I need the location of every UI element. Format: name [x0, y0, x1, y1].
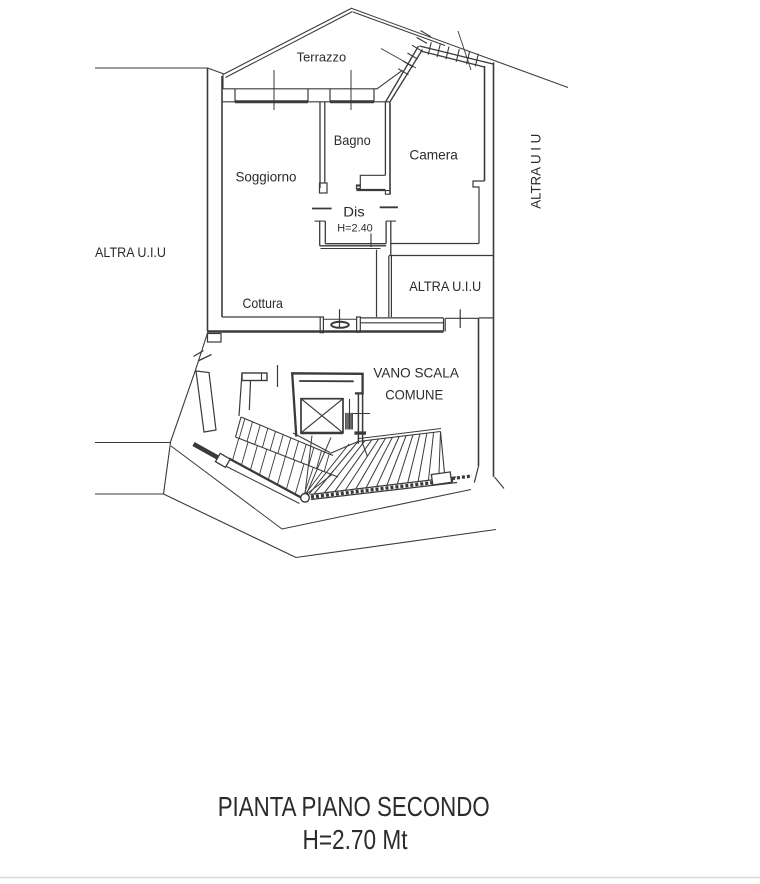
svg-text:Dis: Dis	[343, 204, 365, 220]
svg-text:Soggiorno: Soggiorno	[236, 169, 297, 185]
svg-text:Cottura: Cottura	[242, 295, 283, 311]
svg-text:Camera: Camera	[409, 147, 458, 163]
svg-text:ALTRA U I U: ALTRA U I U	[528, 134, 544, 209]
svg-text:H=2.40: H=2.40	[337, 223, 373, 235]
svg-text:PIANTA PIANO SECONDO: PIANTA PIANO SECONDO	[218, 791, 490, 822]
svg-text:H=2.70 Mt: H=2.70 Mt	[303, 824, 408, 855]
svg-text:COMUNE: COMUNE	[385, 387, 443, 403]
svg-text:ALTRA U.I.U: ALTRA U.I.U	[409, 278, 481, 294]
svg-text:Terrazzo: Terrazzo	[297, 50, 347, 65]
svg-text:VANO SCALA: VANO SCALA	[373, 365, 459, 381]
svg-text:Bagno: Bagno	[334, 132, 371, 148]
svg-text:ALTRA U.I.U: ALTRA U.I.U	[95, 244, 166, 260]
